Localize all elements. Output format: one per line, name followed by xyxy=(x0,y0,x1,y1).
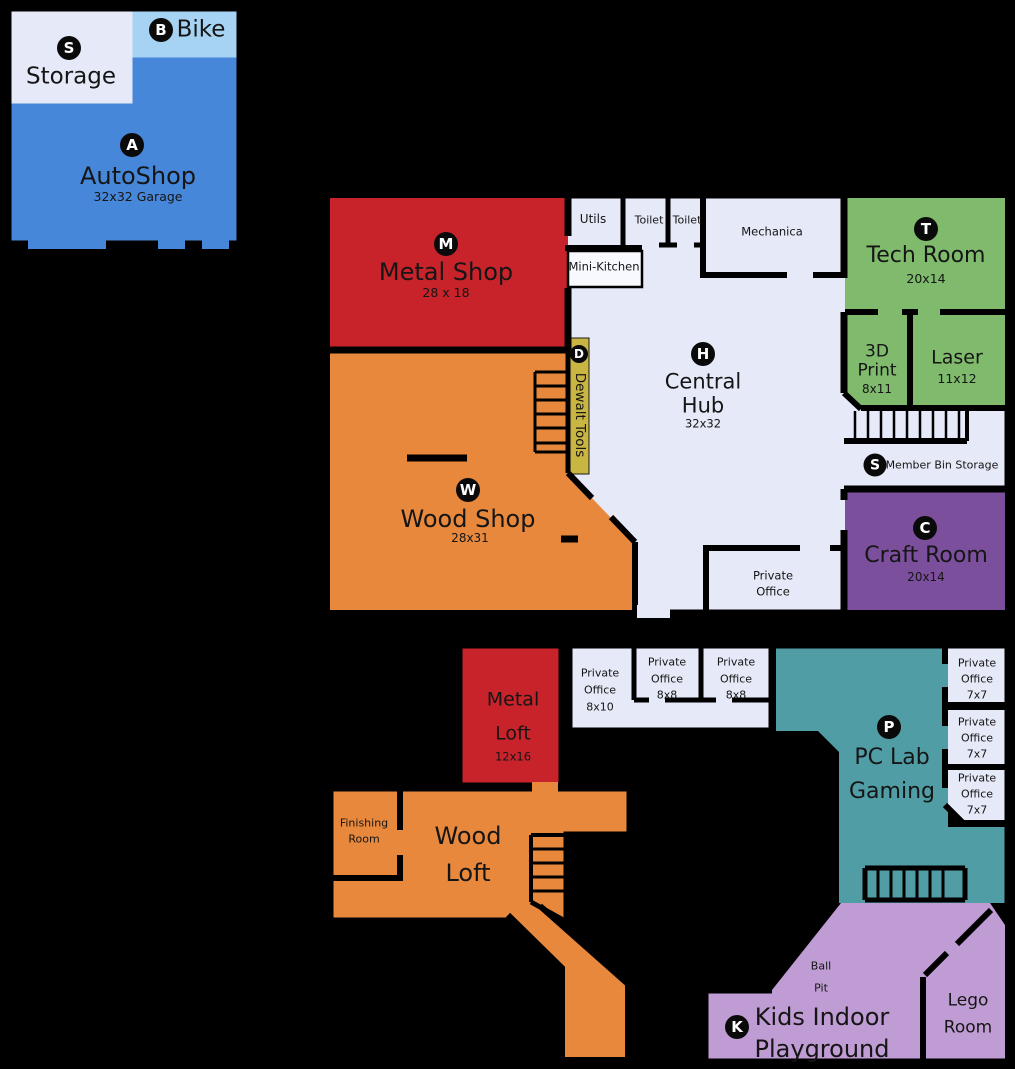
office-3-size: 8x8 xyxy=(726,690,747,701)
hub-exit-door xyxy=(637,605,670,618)
side-office-3-label-1: Private xyxy=(958,773,996,784)
central-hub-label-1: Central xyxy=(665,372,741,393)
side-office-1-label-1: Private xyxy=(958,658,996,669)
kids-label-1: Kids Indoor xyxy=(755,1005,890,1029)
metal-loft-area xyxy=(459,645,562,786)
lego-room-label-2: Room xyxy=(944,1020,992,1037)
metal-shop-badge: M xyxy=(434,232,458,256)
floor-plan-canvas xyxy=(0,0,1015,1069)
laser-size: 11x12 xyxy=(937,373,976,386)
office-3-label-1: Private xyxy=(717,657,755,668)
3d-print-size: 8x11 xyxy=(862,383,892,395)
tech-room-label: Tech Room xyxy=(867,245,986,267)
kids-badge: K xyxy=(725,1015,749,1039)
side-office-divider-2 xyxy=(942,764,1008,770)
pc-lab-area-east xyxy=(948,827,1005,903)
finishing-room-label-1: Finishing xyxy=(340,818,388,829)
office-2-size: 8x8 xyxy=(657,690,678,701)
ball-pit-label-2: Pit xyxy=(814,983,828,994)
member-bin-label: Member Bin Storage xyxy=(886,460,999,471)
finishing-room-label-2: Room xyxy=(348,834,379,845)
autoshop-size: 32x32 Garage xyxy=(94,191,183,204)
mechanica-label: Mechanica xyxy=(741,226,803,238)
storage-badge: S xyxy=(57,36,81,60)
bike-badge: B xyxy=(149,18,173,42)
storage-label: Storage xyxy=(26,66,116,89)
craft-room-label: Craft Room xyxy=(864,545,988,567)
garage-door-2 xyxy=(158,239,185,249)
kids-label-2: Playground xyxy=(755,1037,890,1061)
ball-pit-label-1: Ball xyxy=(811,961,831,972)
wood-shop-size: 28x31 xyxy=(451,532,489,544)
garage-door-3 xyxy=(202,239,229,249)
lego-room-label-1: Lego xyxy=(948,993,989,1010)
wood-loft-label-2: Loft xyxy=(445,861,490,885)
metal-shop-label: Metal Shop xyxy=(379,260,513,284)
office-2-label-1: Private xyxy=(648,657,686,668)
craft-room-size: 20x14 xyxy=(907,571,945,583)
pc-lab-badge: P xyxy=(877,715,901,739)
tech-room-badge: T xyxy=(914,217,938,241)
pc-lab-label-1: PC Lab xyxy=(854,747,929,769)
side-office-divider-1 xyxy=(942,702,1008,710)
side-office-3-size: 7x7 xyxy=(967,805,988,816)
autoshop-badge: A xyxy=(120,133,144,157)
metal-loft-size: 12x16 xyxy=(495,751,531,763)
mini-kitchen-label: Mini-Kitchen xyxy=(569,261,640,273)
3d-print-label-1: 3D xyxy=(865,344,889,361)
wood-loft-area xyxy=(330,788,630,921)
hub-private-office-label-2: Office xyxy=(756,586,790,598)
pc-lab-label-2: Gaming xyxy=(849,781,935,803)
toilet-2-label: Toilet xyxy=(673,215,702,226)
garage-door-2-edge xyxy=(156,249,187,252)
tech-room-size: 20x14 xyxy=(906,273,945,286)
floor-plan: S B A M W D H T S C P K Storage Bike Aut… xyxy=(0,0,1015,1069)
office-1-size: 8x10 xyxy=(586,702,614,713)
craft-room-badge: C xyxy=(913,516,937,540)
central-hub-badge: H xyxy=(691,342,715,366)
office-1-label-2: Office xyxy=(584,685,616,696)
metal-loft-label-1: Metal xyxy=(487,691,539,710)
side-office-1-size: 7x7 xyxy=(967,690,988,701)
utils-label: Utils xyxy=(580,213,606,225)
autoshop-label: AutoShop xyxy=(80,164,196,188)
pc-lab-notch xyxy=(776,731,839,903)
metal-loft-label-2: Loft xyxy=(495,725,531,744)
office-2-label-2: Office xyxy=(651,674,683,685)
metal-shop-size: 28 x 18 xyxy=(422,287,469,300)
side-office-2-label-1: Private xyxy=(958,717,996,728)
toilet-1-label: Toilet xyxy=(635,215,664,226)
bike-label: Bike xyxy=(177,19,226,42)
laser-label: Laser xyxy=(931,349,983,368)
garage-door-1 xyxy=(28,239,106,249)
central-hub-size: 32x32 xyxy=(685,418,721,430)
loft-connecting-door xyxy=(532,782,558,793)
central-hub-label-2: Hub xyxy=(682,396,724,417)
wood-shop-label: Wood Shop xyxy=(401,507,536,531)
office-3-label-2: Office xyxy=(720,674,752,685)
side-office-2-size: 7x7 xyxy=(967,749,988,760)
side-office-1-label-2: Office xyxy=(961,674,993,685)
side-office-2-label-2: Office xyxy=(961,733,993,744)
garage-door-1-edge xyxy=(26,249,108,252)
office-1-label-1: Private xyxy=(581,668,619,679)
garage-door-3-edge xyxy=(200,249,231,252)
dewalt-tools-label: Dewalt Tools xyxy=(572,373,586,458)
wood-shop-badge: W xyxy=(456,478,480,502)
hub-private-office-label-1: Private xyxy=(753,570,793,582)
wood-loft-label-1: Wood xyxy=(435,824,502,848)
member-bin-badge: S xyxy=(864,454,887,477)
dewalt-badge: D xyxy=(570,345,588,363)
side-office-3-label-2: Office xyxy=(961,789,993,800)
3d-print-label-2: Print xyxy=(857,363,896,380)
